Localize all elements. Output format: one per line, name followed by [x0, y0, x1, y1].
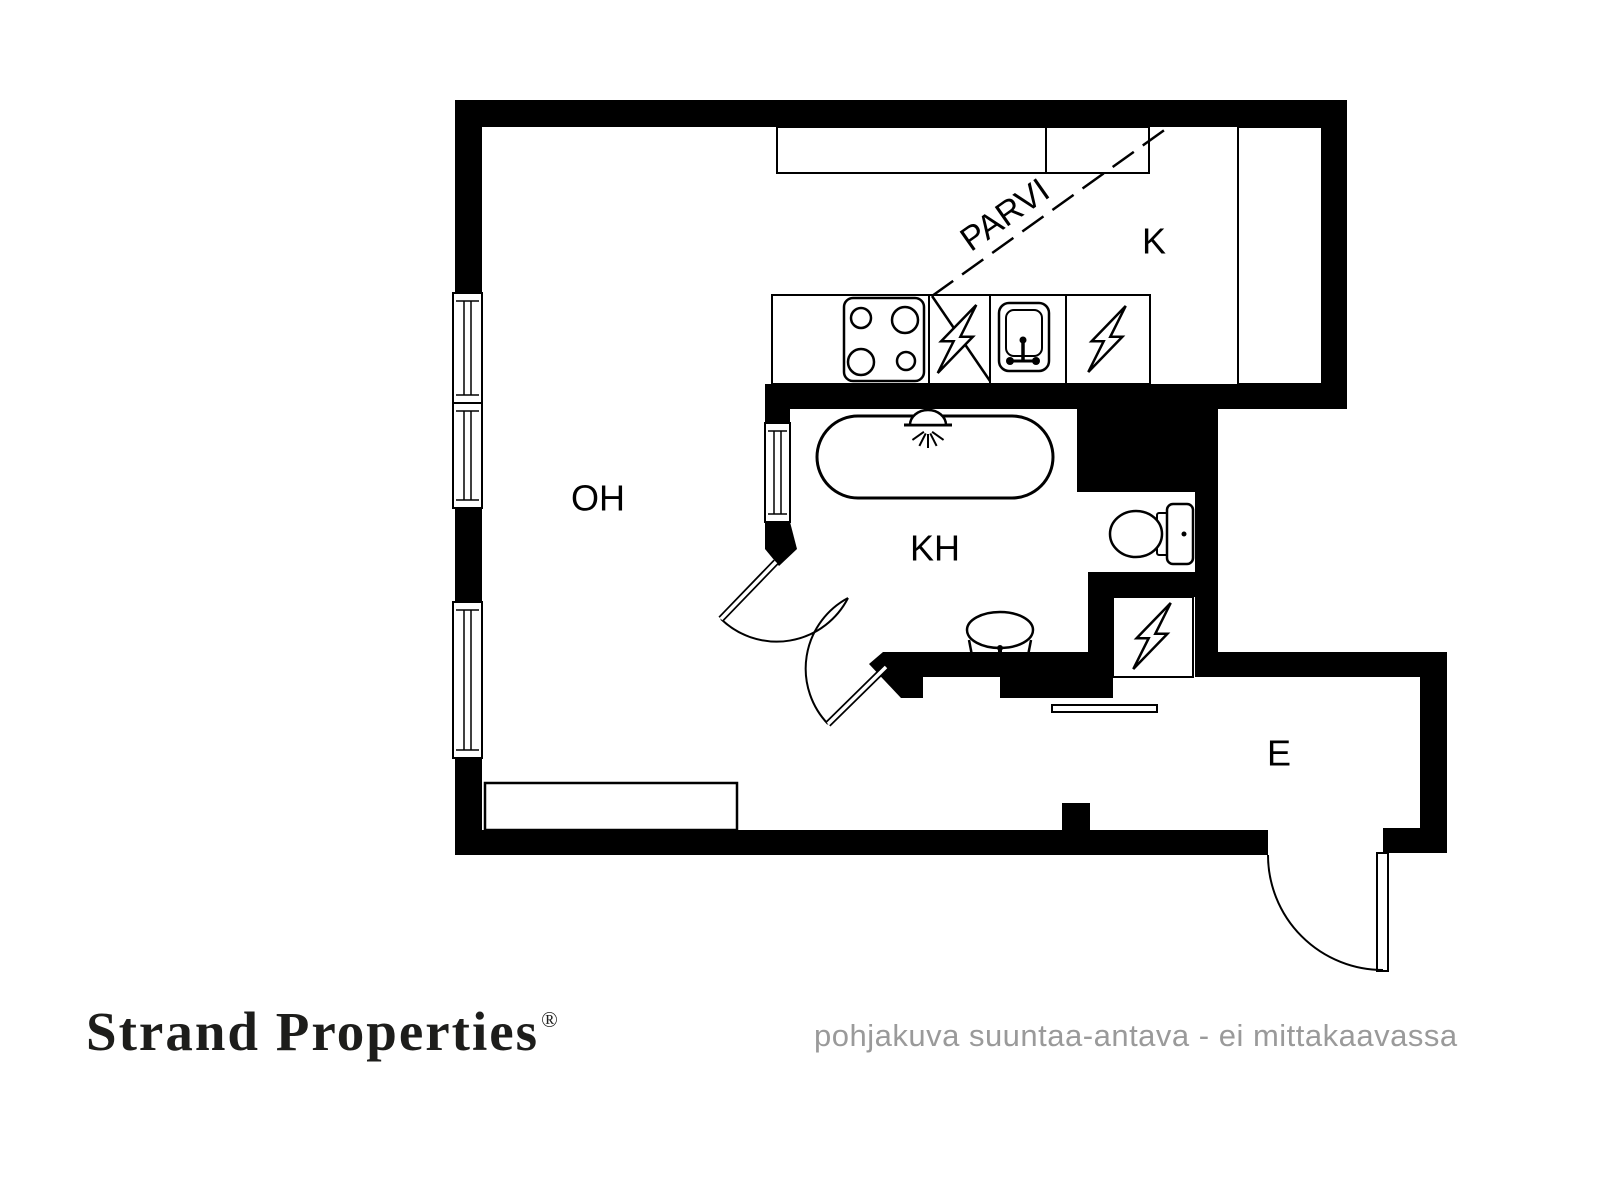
stove-burner	[848, 349, 874, 375]
wall-bottom-stub	[1062, 803, 1090, 830]
wall-bottom	[455, 830, 1268, 855]
wall-bathroom-door-jamb	[765, 522, 797, 566]
kitchen-upper-cabinet	[777, 127, 1149, 173]
door-swing-entry	[1268, 855, 1383, 970]
wall-entry-right	[1420, 675, 1447, 853]
wall-bathroom-left-upper	[765, 409, 790, 424]
kitchen-faucet-knob	[1020, 337, 1027, 344]
floorplan-page: OHKKHEPARVI Strand Properties® pohjakuva…	[0, 0, 1600, 1200]
scale-disclaimer: pohjakuva suuntaa-antava - ei mittakaava…	[814, 1018, 1458, 1054]
brand-logo-text: Strand Properties	[86, 1001, 539, 1062]
brand-logo: Strand Properties®	[86, 1000, 556, 1063]
kitchen-faucet-dot	[1006, 357, 1014, 365]
entry-shelf	[1052, 705, 1157, 712]
bathroom-sink-bowl	[967, 612, 1033, 648]
door-swing-bathroom-inner	[806, 598, 848, 724]
room-label-living-room: OH	[571, 478, 625, 519]
wall-top	[455, 100, 1347, 127]
kitchen-tall-cabinet	[1238, 127, 1322, 384]
wall-bathroom-right-block	[1077, 409, 1218, 492]
toilet-bowl	[1110, 511, 1162, 557]
entry-door-leaf	[1377, 853, 1388, 971]
toilet-flush-button	[1182, 532, 1187, 537]
wall-left-upper	[455, 100, 482, 293]
window-bathroom	[765, 423, 790, 522]
stove-burner	[897, 352, 915, 370]
bathroom-faucet-dot	[985, 660, 993, 668]
room-label-entry: E	[1267, 733, 1291, 774]
kitchen-faucet-dot	[1032, 357, 1040, 365]
wall-kitchen-bathroom	[765, 384, 1347, 409]
shower-head-icon	[910, 410, 946, 425]
door-leaf-bathroom-outer-inner	[721, 562, 776, 619]
wall-toilet-niche-bottom	[1088, 572, 1218, 597]
room-label-kitchen: K	[1142, 221, 1166, 262]
loft-label: PARVI	[954, 171, 1057, 259]
registered-trademark-icon: ®	[541, 1007, 558, 1032]
bathtub	[817, 416, 1053, 498]
door-leaf-bathroom-inner-inner	[828, 667, 886, 724]
window-left-1	[453, 293, 482, 403]
window-left-2	[453, 403, 482, 508]
bathroom-faucet-knob	[997, 645, 1003, 651]
stove-burner	[892, 307, 918, 333]
door-swing-bathroom-outer	[721, 598, 848, 642]
bathroom-faucet-dot	[1007, 660, 1015, 668]
wall-entry-top	[1218, 652, 1447, 677]
stove-burner	[851, 308, 871, 328]
wall-kitchen-right	[1322, 100, 1347, 409]
toilet-tank	[1167, 504, 1193, 564]
wall-left-middle	[455, 508, 482, 602]
window-left-3	[453, 602, 482, 758]
room-label-bathroom: KH	[910, 528, 960, 569]
wall-bathroom-bottom-step	[1000, 673, 1113, 698]
living-room-cabinet	[485, 783, 737, 830]
